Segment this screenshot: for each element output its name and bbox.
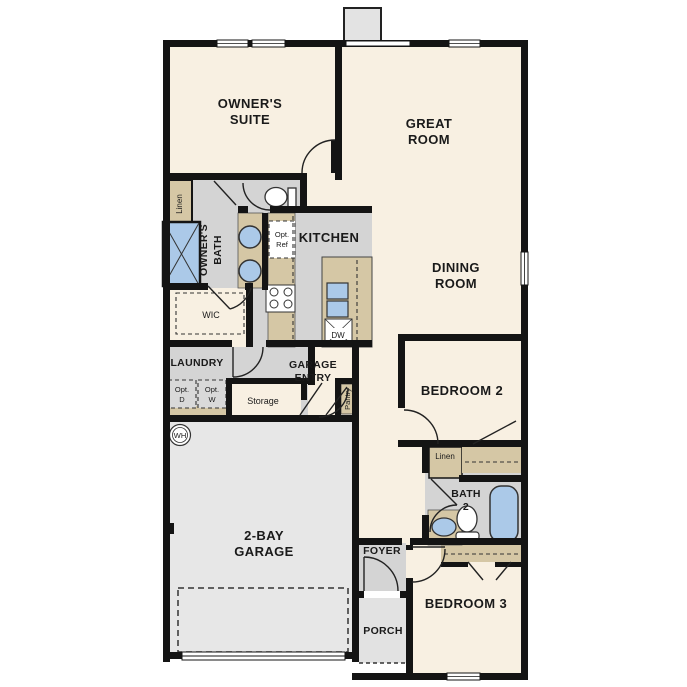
room-label-garage-entry-2: ENTRY [295, 372, 332, 384]
room-label-dining-room-1: DINING [432, 260, 480, 275]
room-label-great-room-2: ROOM [408, 132, 450, 147]
bedroom2-closet [462, 447, 521, 473]
floor-plan: OWNER'S SUITE GREAT ROOM DINING ROOM KIT… [0, 0, 687, 687]
room-label-owners-bath-1: OWNER'S [198, 224, 210, 276]
window-fireplace [346, 41, 410, 46]
room-label-porch: PORCH [363, 625, 402, 637]
room-label-owners-suite-2: SUITE [230, 112, 270, 127]
exterior-wall-bottom [352, 673, 528, 680]
kitchen-sink-2 [327, 301, 348, 317]
label-opt-d-2: D [179, 395, 185, 404]
kitchen-range [266, 285, 295, 312]
room-label-great-room-1: GREAT [406, 116, 453, 131]
label-linen-hall: Linen [435, 452, 455, 461]
label-opt-ref-1: Opt. [275, 230, 289, 239]
room-label-wic: WIC [202, 310, 220, 320]
room-label-owners-bath-2: BATH [212, 235, 224, 265]
room-label-garage-2: GARAGE [234, 544, 293, 559]
room-label-dining-room-2: ROOM [435, 276, 477, 291]
garage-right-wall [352, 345, 359, 662]
room-label-bath2-1: BATH [451, 488, 481, 500]
room-label-garage-1: 2-BAY [244, 528, 284, 543]
room-label-foyer: FOYER [363, 545, 401, 557]
bath2-tub [490, 486, 518, 542]
vanity-sink-1 [239, 226, 261, 248]
room-label-bedroom2: BEDROOM 2 [421, 383, 503, 398]
label-water-heater: WH [174, 431, 187, 440]
label-opt-w-1: Opt. [205, 385, 219, 394]
room-label-laundry: LAUNDRY [170, 357, 223, 369]
label-opt-w-2: W [208, 395, 216, 404]
exterior-wall-right [521, 40, 528, 680]
label-opt-ref-2: Ref [276, 240, 289, 249]
room-label-owners-suite-1: OWNER'S [218, 96, 282, 111]
exterior-wall-left [163, 40, 170, 662]
label-linen-owners: Linen [175, 194, 184, 214]
room-label-kitchen: KITCHEN [299, 230, 360, 245]
room-label-bedroom3: BEDROOM 3 [425, 596, 507, 611]
vanity-sink-2 [239, 260, 261, 282]
fireplace-chimney [344, 8, 381, 42]
room-label-bath2-2: 2 [463, 501, 469, 513]
label-opt-d-1: Opt. [175, 385, 189, 394]
kitchen-sink-1 [327, 283, 348, 299]
floor-plan-drawing: OWNER'S SUITE GREAT ROOM DINING ROOM KIT… [0, 0, 687, 687]
bath2-sink [432, 518, 456, 536]
label-storage: Storage [247, 396, 279, 406]
room-label-garage-entry-1: GARAGE [289, 359, 337, 371]
label-pantry: Pantry [343, 388, 352, 410]
label-dishwasher: DW [331, 331, 345, 340]
owners-toilet [265, 188, 296, 208]
